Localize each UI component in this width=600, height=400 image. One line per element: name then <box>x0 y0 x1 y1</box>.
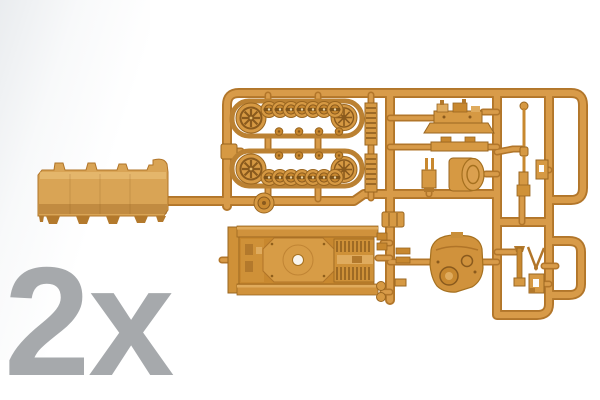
product-image: 2x Product photo: tan plastic model-kit … <box>0 0 600 400</box>
part-wheel-hub <box>254 193 274 213</box>
part-hull-top-deck <box>228 226 378 295</box>
part-track-assembly-lower <box>232 151 362 186</box>
road-wheels <box>261 102 343 118</box>
part-right-fittings <box>514 246 544 293</box>
part-flat-plate <box>431 137 488 151</box>
part-bracket <box>536 160 548 179</box>
part-pronged-fitting <box>422 158 436 192</box>
part-superstructure <box>424 99 494 133</box>
turret-ring-hole <box>293 255 304 266</box>
quantity-label: 2x <box>4 244 172 399</box>
part-mantlet-drum <box>449 158 484 191</box>
part-track-assembly-upper <box>232 101 362 136</box>
part-turret <box>430 232 483 292</box>
part-hull-side-panel <box>38 159 168 224</box>
